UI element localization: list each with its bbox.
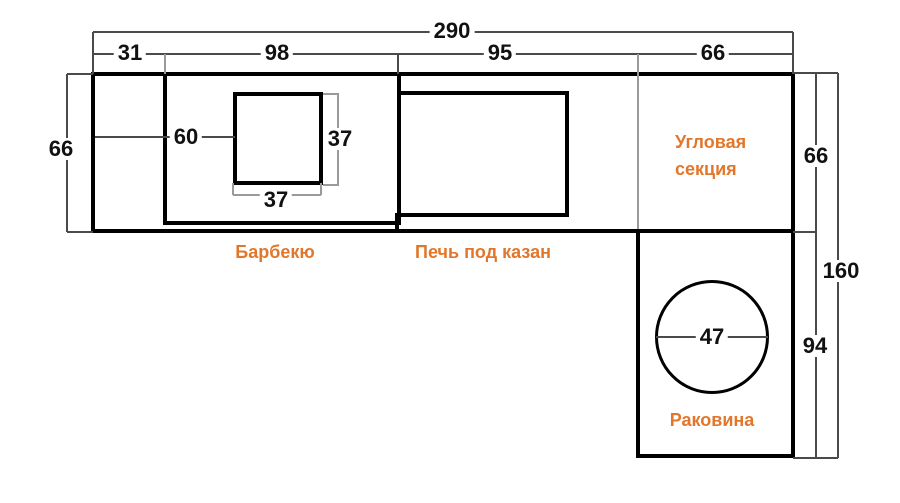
barbecue-label: Барбекю [235,242,314,264]
dim-tick-hole-bottom-right [320,183,322,195]
dim-tick-hole-bottom-left [232,183,234,195]
corner-section-label-line2: секция [675,156,746,183]
dim-line-segments [93,53,793,55]
stove-label: Печь под казан [415,242,551,264]
dim-tick-hole-right-top [323,93,339,95]
stove-module-outline [397,91,569,217]
corner-section-label-line1: Угловая [675,129,746,156]
dim-barbecue-width: 98 [261,42,293,64]
dim-total-width: 290 [430,20,475,42]
kitchen-plan-diagram: 290 31 98 95 66 66 60 37 37 66 160 94 47… [0,0,900,503]
dim-corner-width: 66 [697,42,729,64]
dim-corner-depth: 66 [800,145,832,167]
dim-line-hole-offset [95,136,235,138]
dim-tick-left-depth-bottom [67,231,93,233]
sink-label: Раковина [670,410,755,432]
dim-left-section-width: 31 [114,42,146,64]
dim-counter-depth: 66 [45,138,77,160]
dim-tick-right-middle [793,231,816,233]
corner-section-separator [637,74,639,232]
dim-tick-segment-398 [397,54,399,74]
dim-hole-side-horizontal: 37 [260,189,292,211]
barbecue-hole-outline [233,92,323,185]
dim-hole-side-vertical: 37 [324,128,356,150]
stove-left-edge-extension [395,213,399,233]
dim-line-right-inner [815,73,817,458]
dim-sink-hole-diameter: 47 [696,326,728,348]
dim-tick-hole-right-bottom [323,184,339,186]
dim-tick-segment-638 [637,54,639,74]
corner-section-label: Угловая секция [675,129,746,183]
dim-tick-left-depth-top [67,73,93,75]
dim-tick-right-bottom [793,457,838,459]
dim-stove-width: 95 [484,42,516,64]
dim-hole-offset: 60 [170,126,202,148]
dim-tick-right-top [793,72,838,74]
dim-tick-segment-165 [164,54,166,74]
dim-right-total-height: 160 [819,260,864,282]
dim-sink-section-height: 94 [799,335,831,357]
